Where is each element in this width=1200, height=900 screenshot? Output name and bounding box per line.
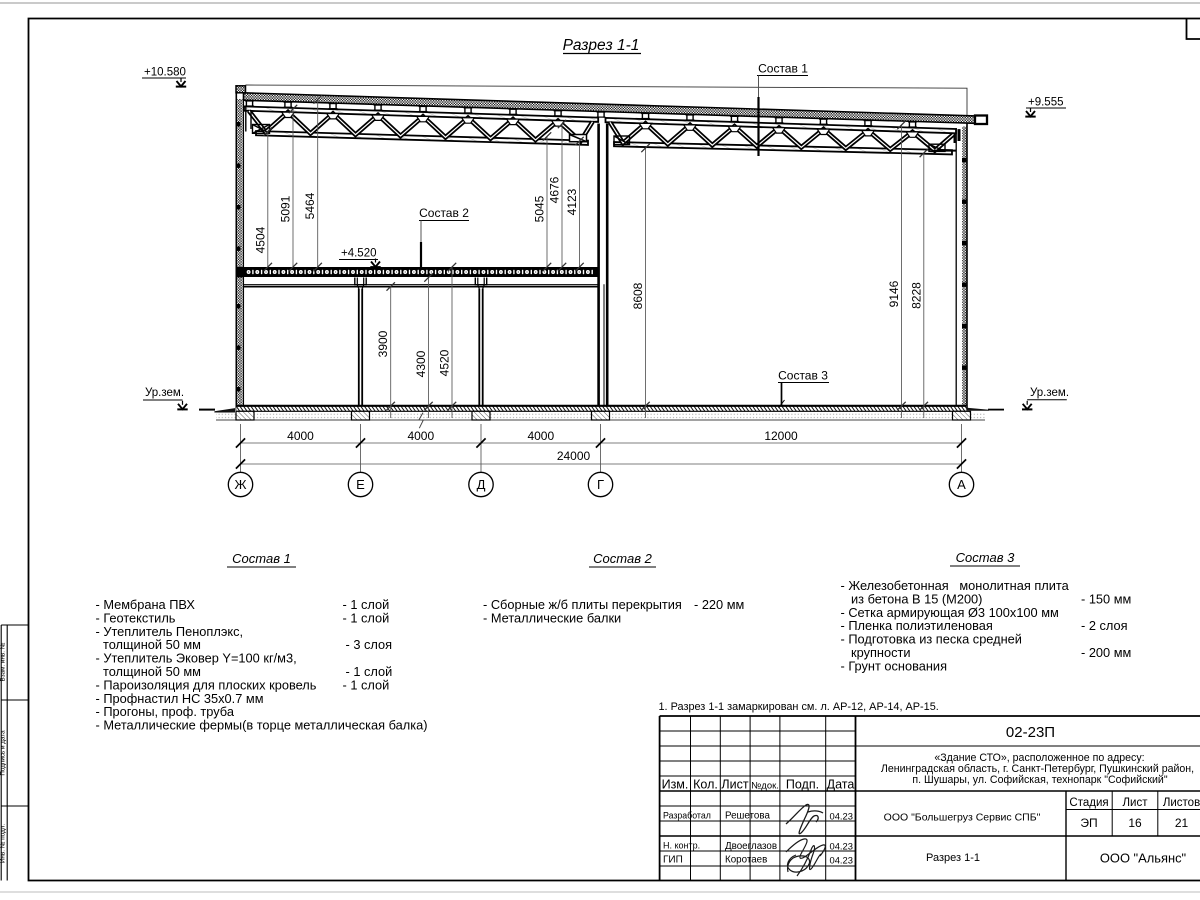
svg-text:Состав 2: Состав 2 (419, 206, 469, 220)
svg-text:Дата: Дата (827, 778, 855, 792)
svg-text:№док.: №док. (751, 781, 779, 792)
svg-text:Решетова: Решетова (725, 811, 770, 822)
svg-text:- 2 слоя: - 2 слоя (1081, 618, 1128, 633)
svg-text:Разработал: Разработал (663, 811, 711, 821)
svg-text:4000: 4000 (527, 429, 554, 443)
svg-text:Разрез 1-1: Разрез 1-1 (926, 852, 980, 864)
svg-text:Состав 1: Состав 1 (758, 62, 808, 76)
svg-text:- Металлические фермы(в торце: - Металлические фермы(в торце металличес… (96, 718, 428, 733)
svg-text:Е: Е (356, 477, 365, 492)
svg-text:+9.555: +9.555 (1028, 97, 1064, 109)
svg-text:Кол.: Кол. (693, 778, 718, 792)
svg-text:8608: 8608 (631, 282, 645, 309)
svg-text:Разрез 1-1: Разрез 1-1 (563, 37, 640, 54)
svg-text:ГИП: ГИП (663, 855, 683, 866)
svg-text:02-23П: 02-23П (1006, 724, 1055, 741)
svg-text:04.23: 04.23 (830, 841, 853, 852)
svg-text:Ж: Ж (234, 477, 246, 492)
svg-text:+4.520: +4.520 (341, 248, 377, 260)
svg-text:4676: 4676 (548, 176, 562, 203)
svg-text:4300: 4300 (414, 350, 428, 377)
svg-text:Состав 3: Состав 3 (778, 369, 828, 383)
svg-text:- 220 мм: - 220 мм (694, 597, 744, 612)
svg-text:Инв. № подл.: Инв. № подл. (0, 824, 6, 863)
svg-text:04.23: 04.23 (830, 811, 853, 822)
svg-text:Коротаев: Коротаев (725, 855, 767, 866)
svg-text:+10.580: +10.580 (144, 67, 186, 79)
svg-text:Состав 1: Состав 1 (232, 551, 291, 566)
svg-text:Н. контр.: Н. контр. (663, 841, 700, 851)
svg-text:04.23: 04.23 (830, 855, 853, 866)
svg-text:- 1 слой: - 1 слой (343, 677, 390, 692)
svg-text:16: 16 (1128, 816, 1142, 830)
svg-text:- 200 мм: - 200 мм (1081, 645, 1131, 660)
svg-text:- Металлические балки: - Металлические балки (483, 610, 621, 625)
svg-text:4000: 4000 (287, 429, 314, 443)
svg-text:ЭП: ЭП (1080, 816, 1097, 830)
svg-text:ООО "Альянс": ООО "Альянс" (1100, 851, 1187, 866)
svg-text:Стадия: Стадия (1069, 797, 1108, 809)
svg-text:п. Шушары, ул. Софийская, техн: п. Шушары, ул. Софийская, технопарк "Соф… (912, 774, 1167, 786)
svg-text:4000: 4000 (407, 429, 434, 443)
svg-text:1. Разрез 1-1 замаркирован см.: 1. Разрез 1-1 замаркирован см. л. АР-12,… (659, 701, 939, 713)
svg-text:4520: 4520 (438, 349, 452, 376)
svg-text:Лист: Лист (721, 778, 748, 792)
svg-text:24000: 24000 (557, 449, 591, 463)
svg-text:- 1 слой: - 1 слой (343, 610, 390, 625)
svg-text:Двоеглазов: Двоеглазов (725, 841, 777, 852)
svg-text:А: А (957, 477, 966, 492)
svg-text:ООО "Большегруз Сервис СПБ": ООО "Большегруз Сервис СПБ" (884, 812, 1041, 824)
svg-text:5091: 5091 (279, 195, 293, 222)
svg-text:9146: 9146 (887, 280, 901, 307)
svg-text:Д: Д (477, 477, 486, 492)
svg-text:Подп.: Подп. (786, 778, 819, 792)
svg-text:4123: 4123 (565, 188, 579, 215)
svg-text:Состав 2: Состав 2 (593, 551, 652, 566)
svg-text:5045: 5045 (533, 195, 547, 222)
svg-text:Состав 3: Состав 3 (956, 550, 1015, 565)
svg-text:Ур.зем.: Ур.зем. (145, 387, 184, 399)
svg-text:21: 21 (1175, 816, 1189, 830)
svg-text:4504: 4504 (253, 226, 267, 253)
svg-text:- Грунт основания: - Грунт основания (841, 658, 948, 673)
svg-text:- 150 мм: - 150 мм (1081, 591, 1131, 606)
svg-text:- 3 слоя: - 3 слоя (346, 637, 393, 652)
svg-text:8228: 8228 (909, 282, 923, 309)
svg-text:12000: 12000 (764, 429, 798, 443)
svg-text:Взам. инв. №: Взам. инв. № (0, 642, 6, 681)
svg-text:Лист: Лист (1123, 797, 1149, 809)
svg-text:Подпись и дата: Подпись и дата (0, 730, 6, 776)
svg-text:Листов: Листов (1163, 797, 1200, 809)
svg-text:Изм.: Изм. (662, 778, 689, 792)
svg-text:Ур.зем.: Ур.зем. (1030, 387, 1069, 399)
svg-text:5464: 5464 (303, 192, 317, 219)
svg-text:3900: 3900 (376, 330, 390, 357)
svg-text:Г: Г (597, 477, 604, 492)
